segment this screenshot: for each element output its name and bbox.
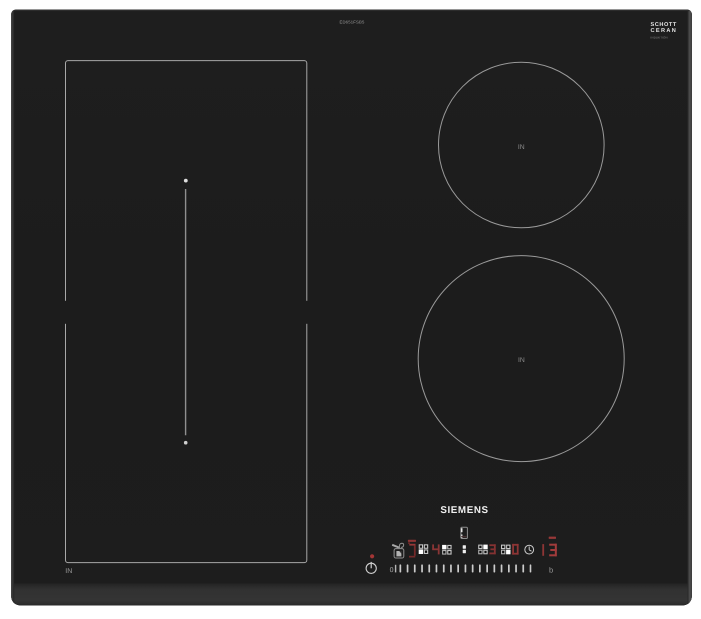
svg-text:CERAN: CERAN <box>651 28 678 34</box>
svg-text:ED651FSB5: ED651FSB5 <box>339 20 365 25</box>
svg-text:SIEMENS: SIEMENS <box>440 505 488 516</box>
svg-text:IN: IN <box>518 144 525 151</box>
svg-text:IN: IN <box>518 357 525 364</box>
svg-text:b: b <box>549 565 553 574</box>
svg-text:IN: IN <box>65 568 72 575</box>
svg-text:INDUKTION: INDUKTION <box>651 36 668 40</box>
svg-text:0: 0 <box>390 567 394 574</box>
